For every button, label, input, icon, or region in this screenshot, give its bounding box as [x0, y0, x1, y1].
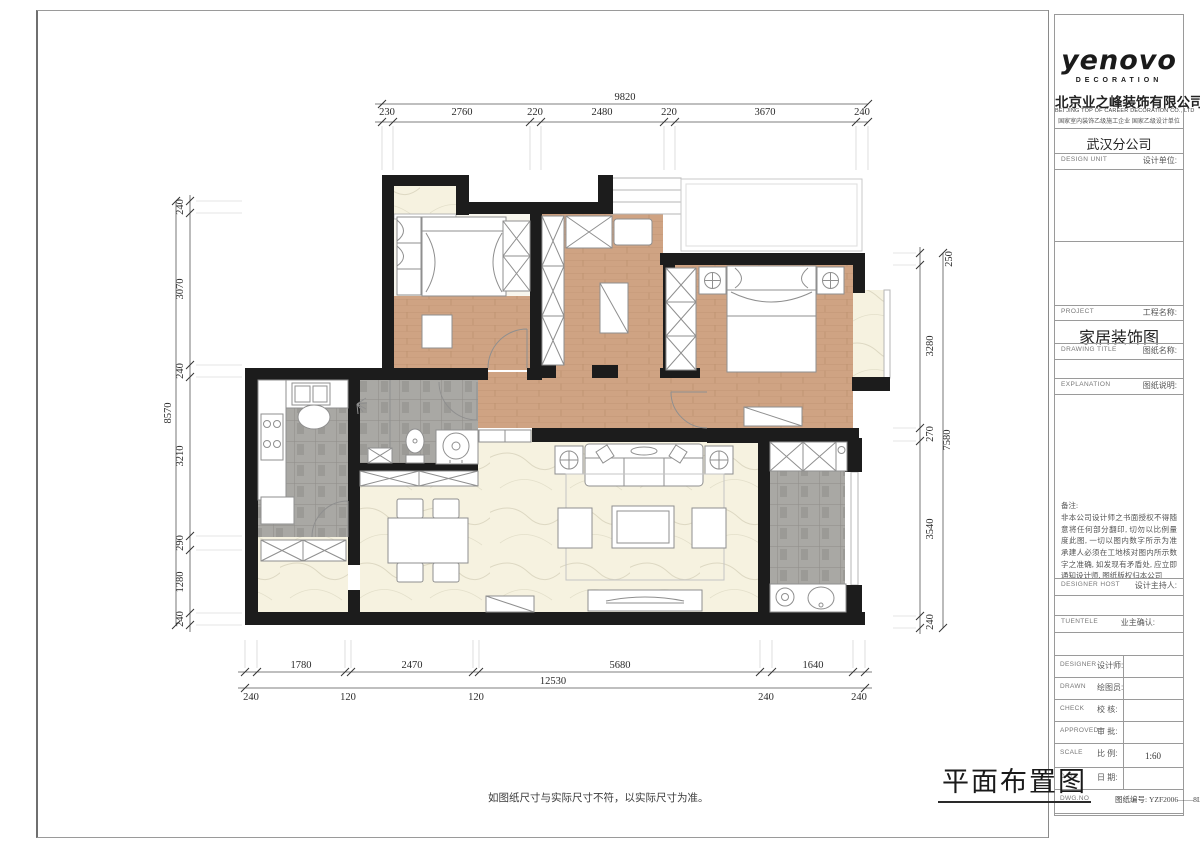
dim-label: 8570 [163, 403, 174, 424]
master-bench [744, 407, 802, 426]
company-name-en: BEI JING TOP OF CAREER DECORATION CO., L… [1055, 108, 1183, 114]
disclaimer-note: 如图纸尺寸与实际尺寸不符，以实际尺寸为准。 [488, 790, 709, 805]
stool-left [558, 508, 592, 548]
company-logo: yenovo [1055, 45, 1183, 76]
hallway-low-cabinet [479, 430, 531, 442]
bathroom-cabinet [368, 448, 392, 463]
notes-title: 备注: [1061, 500, 1177, 512]
designer-row: DESIGNER 设计师: [1055, 655, 1183, 677]
company-certs: 国家室内装饰乙级施工企业 国家乙级设计单位 [1055, 116, 1183, 125]
bay-window-floor [394, 186, 456, 218]
utility-closet [770, 442, 847, 471]
sheet: 2302760220248022036702409820240307024032… [0, 0, 1200, 847]
master-bay-floor [853, 290, 884, 378]
dim-label: 5680 [610, 660, 631, 671]
study-bay-window [611, 178, 681, 214]
hallway-floor [478, 372, 758, 428]
dim-label: 220 [661, 107, 677, 118]
sofa-side-table-left [555, 446, 583, 474]
dim-label: 2470 [402, 660, 423, 671]
designer-host-row: DESIGNER HOST 设计主持人: [1055, 578, 1183, 593]
dim-label: 3210 [175, 446, 186, 467]
notes-text: 非本公司设计师之书面授权不得随意将任何部分翻印, 切勿以比例量度此图, 一切以图… [1061, 512, 1177, 582]
dim-label: 240 [851, 692, 867, 703]
bathroom-vanity [436, 430, 478, 464]
drawing-title-row: DRAWING TITLE 图纸名称: [1055, 343, 1183, 358]
kitchen-cooktop [261, 414, 283, 460]
kitchen-sink [298, 405, 330, 429]
dim-label: 240 [175, 363, 186, 379]
master-nightstand-left [699, 267, 726, 294]
drawn-row: DRAWN 绘图员: [1055, 677, 1183, 699]
approved-row: APPROVED 审 批: [1055, 721, 1183, 743]
master-bed [727, 266, 816, 372]
hall-cabinet-row [360, 471, 478, 486]
study-cabinet [566, 216, 612, 248]
terrace-outline [681, 179, 862, 251]
dim-label: 240 [854, 107, 870, 118]
sofa-side-table-right [705, 446, 733, 474]
dim-label: 120 [340, 692, 356, 703]
dim-label: 250 [944, 251, 955, 267]
dim-label: 3540 [925, 519, 936, 540]
terrace-inner [686, 184, 857, 246]
bedroom2-desk [422, 315, 452, 348]
master-nightstand-right [817, 267, 844, 294]
dining-chair [397, 499, 423, 518]
client-row: TUENTELE 业主确认: [1055, 615, 1183, 630]
sofa [585, 444, 703, 486]
study-closet [542, 216, 564, 365]
bedroom2-wardrobe [503, 221, 530, 291]
dim-label: 240 [925, 614, 936, 630]
entry-threshold [486, 596, 534, 612]
bedroom2-bed [422, 217, 506, 296]
master-wardrobe [666, 268, 696, 370]
dim-label: 1640 [803, 660, 824, 671]
dim-label: 1280 [175, 572, 186, 593]
dim-label: 240 [175, 611, 186, 627]
plan-title: 平面布置图 [938, 760, 1091, 803]
dining-chair [433, 499, 459, 518]
dim-label: 12530 [540, 676, 566, 687]
dim-label: 3070 [175, 279, 186, 300]
branch-name: 武汉分公司 [1055, 134, 1183, 153]
dim-label: 290 [175, 535, 186, 551]
design-unit-row: DESIGN UNIT 设计单位: [1055, 153, 1183, 168]
dim-label: 3280 [925, 336, 936, 357]
tv-cabinet [588, 590, 702, 611]
explanation-row: EXPLANATION 图纸说明: [1055, 378, 1183, 393]
study-seat [614, 219, 652, 245]
toilet [406, 429, 424, 463]
dim-label: 1780 [291, 660, 312, 671]
scale-value: 1:60 [1123, 744, 1183, 767]
company-logo-sub: DECORATION [1055, 77, 1183, 84]
kitchen-appliance [261, 497, 294, 524]
dim-label: 7580 [942, 430, 953, 451]
master-bay-window [884, 290, 890, 378]
dim-label: 220 [527, 107, 543, 118]
dim-label: 9820 [615, 92, 636, 103]
title-block-frame: yenovo DECORATION 北京业之峰装饰有限公司 BEI JING T… [1054, 14, 1184, 816]
dining-chair [397, 563, 423, 582]
floor-plan-svg: 2302760220248022036702409820240307024032… [0, 0, 1200, 847]
entry-shoe-cabinet [261, 540, 346, 561]
dim-label: 3670 [755, 107, 776, 118]
dim-label: 240 [758, 692, 774, 703]
dim-label: 230 [379, 107, 395, 118]
utility-window [851, 472, 858, 585]
dim-label: 2760 [452, 107, 473, 118]
dim-label: 240 [175, 199, 186, 215]
bedroom2-shelf [397, 217, 421, 295]
stool-right [692, 508, 726, 548]
coffee-table [612, 506, 674, 548]
dim-label: 2480 [592, 107, 613, 118]
dining-table [388, 518, 468, 563]
laundry-counter [770, 584, 846, 612]
check-row: CHECK 校 核: [1055, 699, 1183, 721]
title-block: yenovo DECORATION 北京业之峰装饰有限公司 BEI JING T… [1048, 10, 1188, 838]
dim-label: 270 [925, 426, 936, 442]
dwgno-value: 图纸编号: YZF2006——8L [1115, 794, 1200, 805]
dim-label: 120 [468, 692, 484, 703]
dining-chair [433, 563, 459, 582]
project-row: PROJECT 工程名称: [1055, 305, 1183, 320]
study-desk [600, 283, 628, 333]
dim-label: 240 [243, 692, 259, 703]
